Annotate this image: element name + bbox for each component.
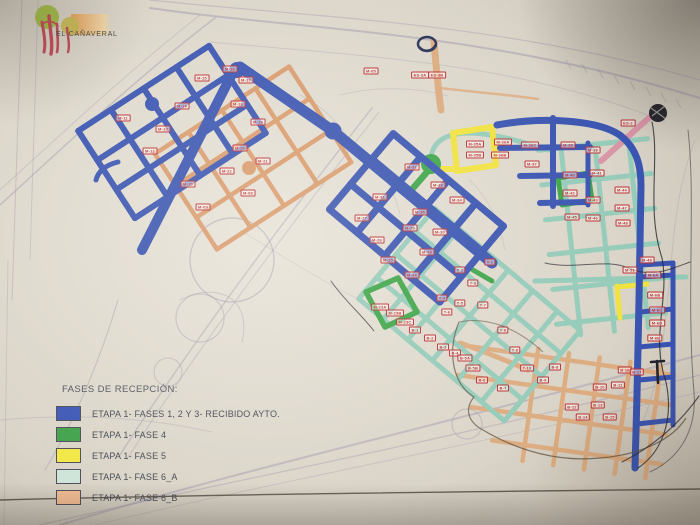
block-label: M-10 xyxy=(181,181,196,188)
block-label: T-3 xyxy=(467,280,478,287)
block-label: B-1 xyxy=(409,327,421,334)
block-label: M-20 xyxy=(233,145,248,152)
block-label: B-3 xyxy=(437,344,449,351)
block-label: T-2 xyxy=(454,267,465,274)
block-label: M-36A xyxy=(494,139,512,146)
block-label: B-2 xyxy=(424,335,436,342)
legend: FASES DE RECEPCIÓN: ETAPA 1- FASES 1, 2 … xyxy=(56,384,356,510)
block-label: ES-3B xyxy=(428,72,446,79)
block-label: T-6 xyxy=(441,309,452,316)
block-label: M-46 xyxy=(586,215,601,222)
block-label: B-5A xyxy=(457,355,472,362)
block-label: B-6 xyxy=(476,377,488,384)
block-label: B-9 xyxy=(537,377,549,384)
block-label: T-10 xyxy=(520,365,534,372)
block-label: M-11 xyxy=(116,115,131,122)
block-label: B-5B xyxy=(465,365,480,372)
block-label: B-8 xyxy=(549,364,561,371)
block-label: M-17 xyxy=(239,77,254,84)
block-label: M-28 xyxy=(420,249,435,256)
legend-swatch-blue xyxy=(56,406,81,421)
block-label: M-48 xyxy=(616,220,631,227)
legend-label: ETAPA 1- FASE 6_B xyxy=(92,492,178,503)
block-label: M-35 xyxy=(413,209,428,216)
block-label: M-6E xyxy=(647,335,662,342)
block-label: B-14 xyxy=(576,414,590,421)
block-label: M-38 xyxy=(561,142,576,149)
block-label: M-6D xyxy=(649,320,665,327)
block-label: M-21 xyxy=(256,158,271,165)
block-label: M-19 xyxy=(251,119,266,126)
block-label: M-23B xyxy=(386,310,404,317)
block-label: T-5 xyxy=(454,300,465,307)
legend-row-phase6a: ETAPA 1- FASE 6_A xyxy=(56,468,356,484)
block-label: M-22 xyxy=(220,168,235,175)
legend-label: ETAPA 1- FASES 1, 2 Y 3- RECIBIDO AYTO. xyxy=(92,408,280,419)
block-label: B-17 xyxy=(630,369,644,376)
block-label: T-9 xyxy=(509,347,520,354)
block-label: M-45 xyxy=(565,214,580,221)
block-label: M-12 xyxy=(143,148,158,155)
legend-label: ETAPA 1- FASE 4 xyxy=(92,429,166,440)
block-label: B-12 xyxy=(565,404,579,411)
block-label: M-25 xyxy=(381,257,396,264)
block-label: M-24 xyxy=(405,272,420,279)
block-label: M-42 xyxy=(563,190,578,197)
block-label: M-49 xyxy=(640,257,655,264)
block-label: M-14 xyxy=(175,103,190,110)
block-label: M-16 xyxy=(223,66,238,73)
block-label: M-36B xyxy=(491,152,509,159)
block-label: ES-3A xyxy=(411,72,429,79)
block-label: M-43 xyxy=(586,197,601,204)
block-label: M-34 xyxy=(450,197,465,204)
block-label: M-37 xyxy=(525,161,540,168)
legend-row-phase5: ETAPA 1- FASE 5 xyxy=(56,447,356,463)
block-label: B-10 xyxy=(593,384,607,391)
block-label: B-11 xyxy=(611,382,625,389)
block-label: M-35A xyxy=(466,141,484,148)
block-label: M-36C xyxy=(521,142,539,149)
block-label: M-6A xyxy=(645,272,661,279)
legend-swatch-yellow xyxy=(56,448,81,463)
legend-swatch-green xyxy=(56,427,81,442)
block-label: M-35B xyxy=(466,152,484,159)
block-label: M-40 xyxy=(563,172,578,179)
block-label: M-47 xyxy=(615,205,630,212)
legend-row-phase123: ETAPA 1- FASES 1, 2 Y 3- RECIBIDO AYTO. xyxy=(56,405,356,421)
block-label: ES-2 xyxy=(621,120,636,127)
block-label: B-15 xyxy=(603,414,617,421)
block-label: M-27 xyxy=(355,215,370,222)
legend-row-phase4: ETAPA 1- FASE 4 xyxy=(56,426,356,442)
legend-label: ETAPA 1- FASE 5 xyxy=(92,450,166,461)
block-label: M-09 xyxy=(196,204,211,211)
block-label: B-7 xyxy=(497,385,509,392)
legend-row-phase6b: ETAPA 1- FASE 6_B xyxy=(56,489,356,505)
block-label: M-32 xyxy=(405,164,420,171)
block-label: T-8 xyxy=(497,327,508,334)
block-label: M-44 xyxy=(615,187,630,194)
logo-title: EL CAÑAVERAL xyxy=(56,31,118,38)
block-label: M-51 xyxy=(623,267,638,274)
photographed-plan: M-16M-17M-15M-14M-13M-12M-11M-10M-09M-18… xyxy=(0,0,700,525)
block-label: B-13 xyxy=(591,402,605,409)
block-label: T-4 xyxy=(436,295,447,302)
block-label: M-05 xyxy=(364,68,379,75)
block-label: M-08 xyxy=(241,190,256,197)
block-label: T-1 xyxy=(484,259,495,266)
logo: EL CAÑAVERAL xyxy=(18,2,178,62)
legend-title: FASES DE RECEPCIÓN: xyxy=(62,384,356,395)
block-label: M-31 xyxy=(373,194,388,201)
legend-swatch-teal xyxy=(56,469,81,484)
block-label: M-41 xyxy=(590,170,605,177)
block-label: M-26 xyxy=(370,237,385,244)
legend-swatch-salmon xyxy=(56,490,81,505)
block-label: T-7 xyxy=(477,302,488,309)
block-label: M-18 xyxy=(231,101,246,108)
block-label: M-29 xyxy=(403,225,418,232)
block-label: M-6B xyxy=(647,292,663,299)
block-label: M-23C xyxy=(396,319,414,326)
legend-label: ETAPA 1- FASE 6_A xyxy=(92,471,178,482)
block-label: M-33 xyxy=(431,182,446,189)
block-label: M-39 xyxy=(586,147,601,154)
block-label: M-6C xyxy=(649,307,665,314)
block-label: M-15 xyxy=(195,75,210,82)
block-label: M-30 xyxy=(433,229,448,236)
block-label: M-13 xyxy=(156,126,171,133)
